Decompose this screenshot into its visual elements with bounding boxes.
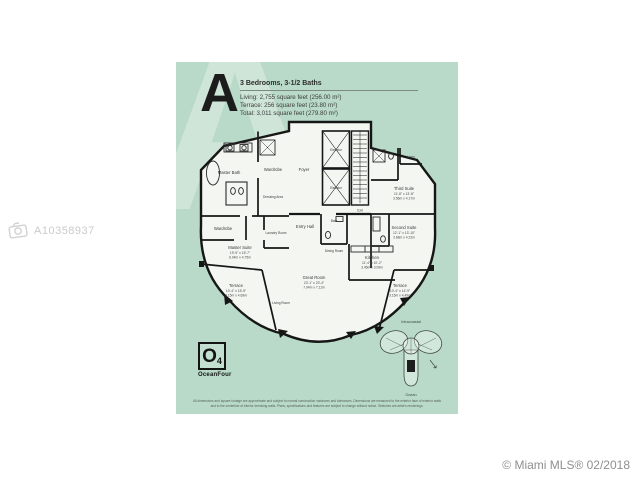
- logo-digit-4: 4: [217, 357, 222, 366]
- great-room-dim-m: 7.04m x 7.11m: [303, 286, 325, 290]
- keyplan-building: [378, 327, 444, 386]
- master-suite-dim-m: 6.04m x 4.75m: [229, 256, 251, 260]
- second-suite-dim-ft: 12'-1" x 13'-10": [393, 231, 416, 235]
- keyplan-unit-a-highlight: [407, 360, 415, 372]
- total-area-label: Total: 3,011 square feet (279.80 m²): [240, 110, 418, 118]
- room-label-master-suite: Master Suite: [228, 245, 252, 250]
- mls-credit: © Miami MLS® 02/2018: [502, 458, 630, 472]
- plan-header: 3 Bedrooms, 3-1/2 Baths Living: 2,755 sq…: [240, 80, 418, 117]
- room-label-terrace-left: Terrace: [229, 283, 244, 288]
- third-suite-dim-m: 3.56m x 4.17m: [393, 197, 415, 201]
- terrace-left-dim-ft: 10'-4" x 15'-5": [226, 289, 247, 293]
- logo-letter-o: O: [202, 347, 217, 366]
- room-label-second-suite: Second Suite: [392, 225, 418, 230]
- disclaimer-line-1: All dimensions and square footage are ap…: [190, 399, 444, 403]
- disclaimer-line-2: and to the centerline of interior demisi…: [190, 404, 444, 408]
- mls-number: A10358937: [34, 225, 95, 237]
- logo-name: OceanFour: [198, 372, 240, 378]
- terrace-left-dim-m: 3.15m x 4.69m: [225, 294, 247, 298]
- floorplan-sheet: A A 3 Bedrooms, 3-1/2 Baths Living: 2,75…: [176, 62, 458, 414]
- room-label-wardrobe-left: Wardrobe: [214, 226, 233, 231]
- kitchen-dim-m: 3.45m x 3.09m: [361, 266, 383, 270]
- site-keyplan: Intracoastal Ocean: [378, 316, 444, 402]
- room-label-third-suite: Third Suite: [394, 186, 415, 191]
- keyplan-north-arrow: [430, 360, 436, 368]
- oceanfour-logo-mark: O4: [198, 342, 226, 370]
- keyplan-intracoastal-label: Intracoastal: [401, 320, 421, 324]
- room-label-foyer: Foyer: [299, 167, 310, 172]
- kitchen-dim-ft: 11'-4" x 10'-2": [362, 261, 383, 265]
- terrace-right-dim-ft: 10'-4" x 14'-9": [390, 289, 411, 293]
- room-label-entry-hall: Entry Hall: [296, 224, 314, 229]
- room-label-master-bath: Master Bath: [218, 170, 241, 175]
- room-label-great-room: Great Room: [303, 275, 326, 280]
- room-label-kitchen: Kitchen: [365, 255, 380, 260]
- third-suite-dim-ft: 11'-8" x 13'-8": [394, 192, 415, 196]
- room-label-elevator-1: Elevator: [330, 148, 343, 152]
- room-label-terrace-right: Terrace: [393, 283, 408, 288]
- second-suite-dim-m: 3.68m x 4.22m: [393, 236, 415, 240]
- disclaimer: All dimensions and square footage are ap…: [190, 399, 444, 408]
- room-label-elevator-2: Elevator: [330, 186, 343, 190]
- camera-icon: [8, 222, 30, 239]
- terrace-area-label: Terrace: 256 square feet (23.80 m²): [240, 102, 418, 110]
- screenshot-canvas: A10358937 A A 3 Bedrooms, 3-1/2 Baths Li…: [0, 0, 640, 480]
- terrace-right-dim-m: 3.15m x 4.49m: [389, 294, 411, 298]
- room-label-linen: Linen: [407, 155, 415, 159]
- room-label-living-room: Living Room: [272, 301, 290, 305]
- oceanfour-logo: O4 OceanFour: [198, 342, 240, 378]
- keyplan-ocean-label: Ocean: [405, 393, 416, 397]
- mls-watermark: A10358937: [8, 222, 95, 239]
- room-label-laundry: Laundry Room: [266, 231, 287, 235]
- master-suite-dim-ft: 19'-9" x 15'-7": [230, 251, 251, 255]
- great-room-dim-ft: 23'-1" x 23'-4": [304, 281, 325, 285]
- room-label-dressing-area: Dressing Area: [263, 195, 283, 199]
- plan-letter: A: [200, 66, 239, 120]
- room-label-exit: Exit: [357, 209, 362, 213]
- living-area-label: Living: 2,755 square feet (256.00 m²): [240, 94, 418, 102]
- room-label-wardrobe-top: Wardrobe: [264, 167, 283, 172]
- room-label-dining: Dining Room: [325, 249, 344, 253]
- room-label-bath: Bath: [331, 219, 338, 223]
- bedrooms-baths-label: 3 Bedrooms, 3-1/2 Baths: [240, 80, 418, 91]
